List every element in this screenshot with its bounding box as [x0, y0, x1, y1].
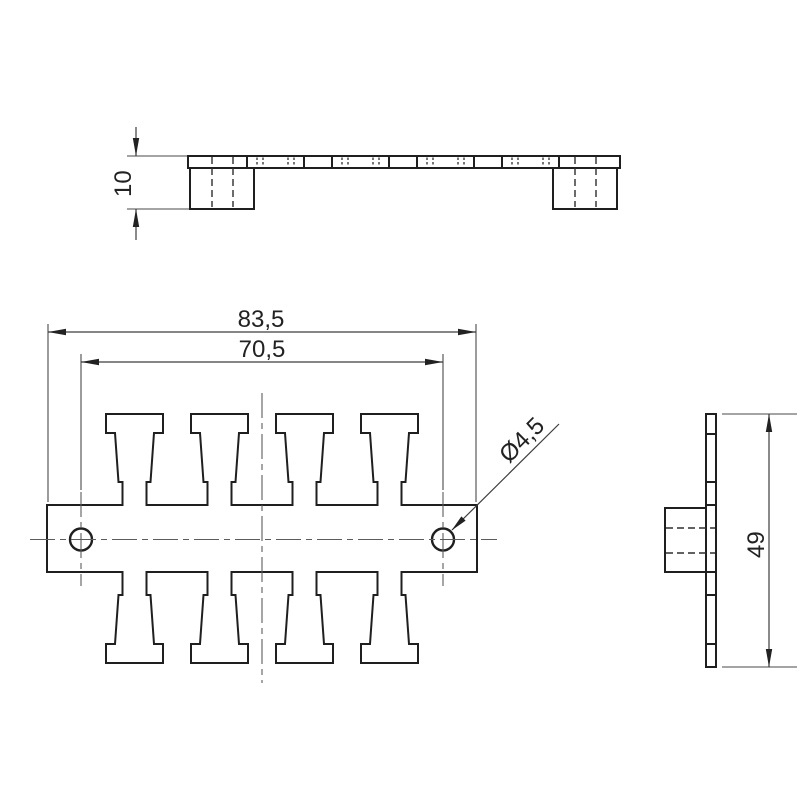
- side-view: [665, 414, 716, 667]
- top-view-plate: [188, 156, 620, 168]
- front-view: [30, 354, 497, 683]
- arrowhead: [425, 359, 443, 365]
- hole-spacing-label: 70,5: [239, 336, 286, 363]
- arrowhead: [48, 329, 66, 335]
- arrowhead: [81, 359, 99, 365]
- top-view-right-foot: [553, 168, 617, 209]
- thickness-dimension: 10: [110, 127, 189, 240]
- arrowhead: [133, 138, 139, 156]
- hole-spacing-dimension: 70,5: [81, 336, 443, 365]
- overall-height-dimension: 49: [722, 414, 797, 667]
- arrowhead: [766, 649, 772, 667]
- top-view-left-foot: [190, 168, 254, 209]
- overall-height-label: 49: [743, 531, 770, 558]
- arrowhead: [458, 329, 476, 335]
- arrowhead: [133, 209, 139, 227]
- top-view: [188, 156, 620, 209]
- arrowhead: [766, 414, 772, 432]
- technical-drawing-sheet: 10 83,5 70,5 Ø4,5: [0, 0, 800, 800]
- side-view-plate: [706, 414, 716, 667]
- overall-width-label: 83,5: [238, 306, 285, 333]
- side-view-foot: [665, 508, 706, 572]
- drawing-svg: 10 83,5 70,5 Ø4,5: [0, 0, 800, 800]
- thickness-dimension-label: 10: [110, 170, 137, 197]
